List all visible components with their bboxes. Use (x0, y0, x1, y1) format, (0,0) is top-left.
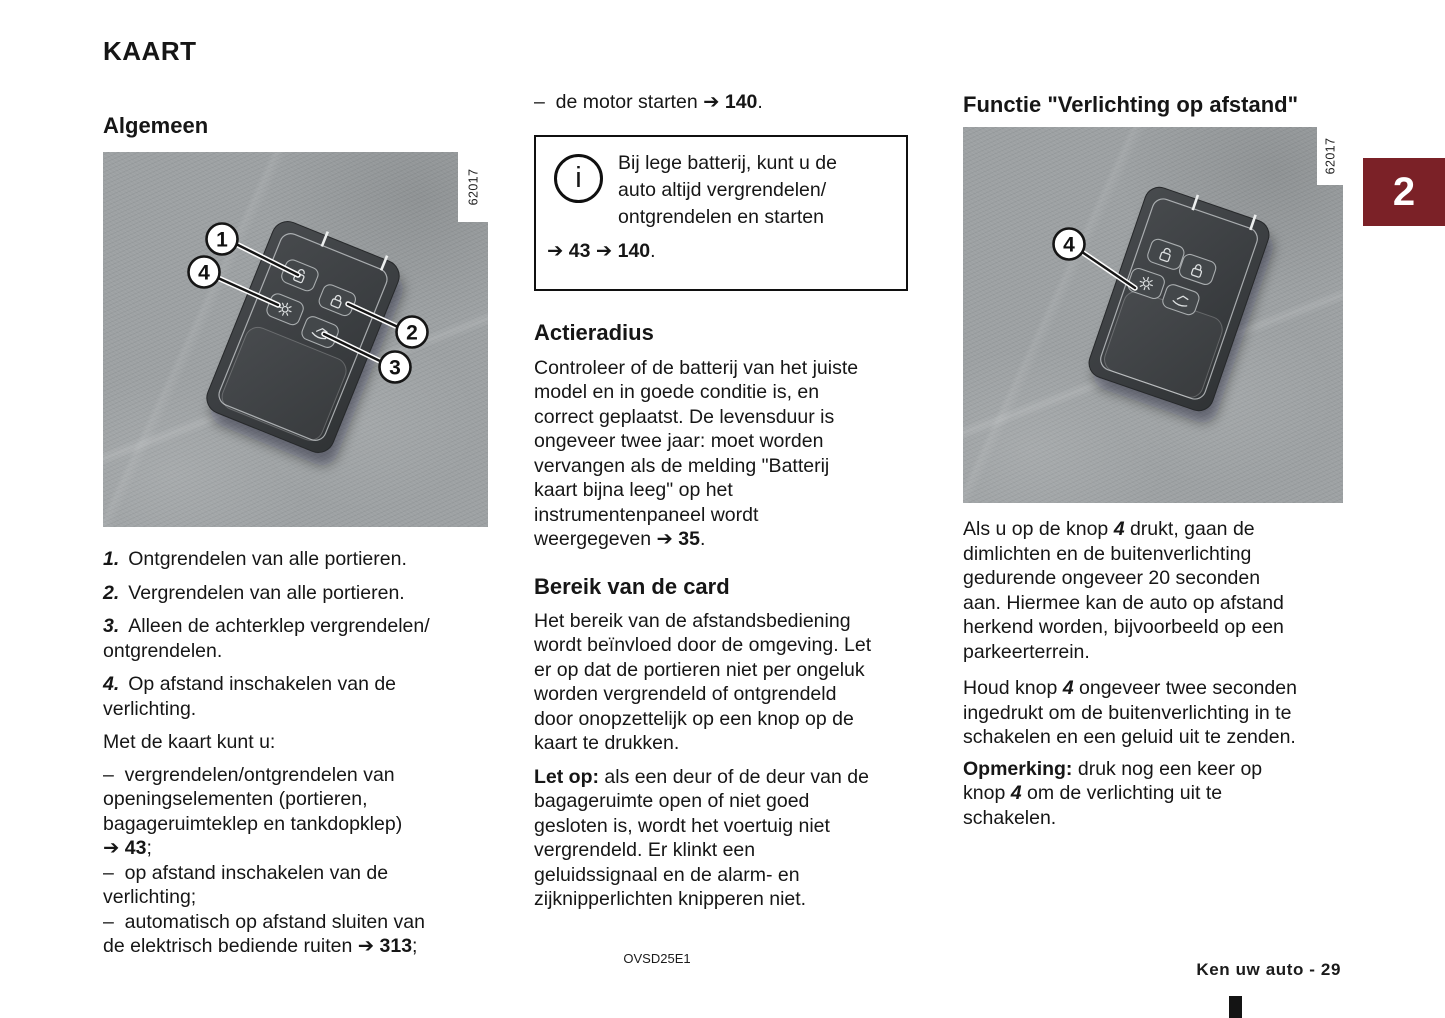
keycard (1082, 179, 1282, 427)
section-title-verlichting: Functie "Verlichting op afstand" (963, 92, 1365, 118)
middle-column: – de motor starten ➔ 140. i Bij lege bat… (534, 90, 916, 912)
callout-2: 2 (406, 322, 418, 345)
manual-page: KAART Algemeen (0, 0, 1445, 1018)
left-column: Algemeen (103, 113, 505, 959)
list-item: 2.Vergrendelen van alle portieren. (103, 581, 505, 606)
section-title-algemeen: Algemeen (103, 113, 505, 139)
keycard-diagram: 1 4 2 3 (103, 152, 488, 527)
figure-reference: 62017 (458, 152, 488, 222)
note-paragraph: Let op: als een deur of de deur van de b… (534, 765, 916, 912)
info-box: i Bij lege batterij, kunt u de auto alti… (534, 135, 908, 291)
callout-4: 4 (198, 262, 210, 285)
bullet-item: – vergrendelen/ontgrendelen van openings… (103, 763, 505, 861)
chapter-tab: 2 (1363, 158, 1445, 226)
section-title-bereik: Bereik van de card (534, 574, 916, 600)
list-item: 3.Alleen de achterklep vergrendelen/ ont… (103, 614, 505, 663)
right-column: Functie "Verlichting op afstand" (963, 92, 1365, 830)
bullet-item: – automatisch op afstand sluiten van de … (103, 910, 505, 959)
item-number: 2. (103, 582, 119, 604)
section-title-actieradius: Actieradius (534, 320, 916, 346)
bullet-item: – op afstand inschakelen van de verlicht… (103, 861, 505, 910)
list-item: 4.Op afstand inschakelen van de verlicht… (103, 672, 505, 721)
print-registration-mark (1229, 996, 1242, 1018)
figure-keycard-general: 1 4 2 3 62017 (103, 152, 488, 527)
section-body: Het bereik van de afstandsbediening word… (534, 609, 916, 756)
intro-line: Met de kaart kunt u: (103, 730, 505, 755)
callout-3: 3 (389, 357, 401, 380)
callout-4: 4 (1063, 234, 1075, 257)
figure-reference: 62017 (1317, 127, 1343, 185)
section-body: Controleer of de batterij van het juiste… (534, 356, 916, 552)
note-paragraph: Opmerking: druk nog een keer op knop 4 o… (963, 757, 1365, 831)
keycard-diagram: 4 (963, 127, 1343, 503)
document-code: OVSD25E1 (607, 951, 707, 966)
body-paragraph: Als u op de knop 4 drukt, gaan de dimlic… (963, 517, 1365, 664)
callouts: 4 (1054, 229, 1085, 260)
item-number: 1. (103, 548, 119, 570)
chapter-number: 2 (1393, 170, 1415, 215)
body-paragraph: Houd knop 4 ongeveer twee seconden inged… (963, 676, 1365, 750)
info-icon: i (554, 154, 603, 203)
list-item: 1.Ontgrendelen van alle portieren. (103, 547, 505, 572)
callout-1: 1 (216, 229, 228, 252)
bullet-item: – de motor starten ➔ 140. (534, 90, 916, 115)
info-box-references: ➔ 43 ➔ 140. (547, 239, 896, 263)
info-box-text: Bij lege batterij, kunt u de auto altijd… (618, 150, 837, 231)
page-title: KAART (103, 36, 197, 66)
item-number: 4. (103, 673, 119, 695)
item-number: 3. (103, 615, 119, 637)
page-number-label: Ken uw auto - 29 (1196, 960, 1341, 980)
button-legend-list: 1.Ontgrendelen van alle portieren. 2.Ver… (103, 547, 505, 721)
figure-keycard-lighting: 4 62017 (963, 127, 1343, 503)
